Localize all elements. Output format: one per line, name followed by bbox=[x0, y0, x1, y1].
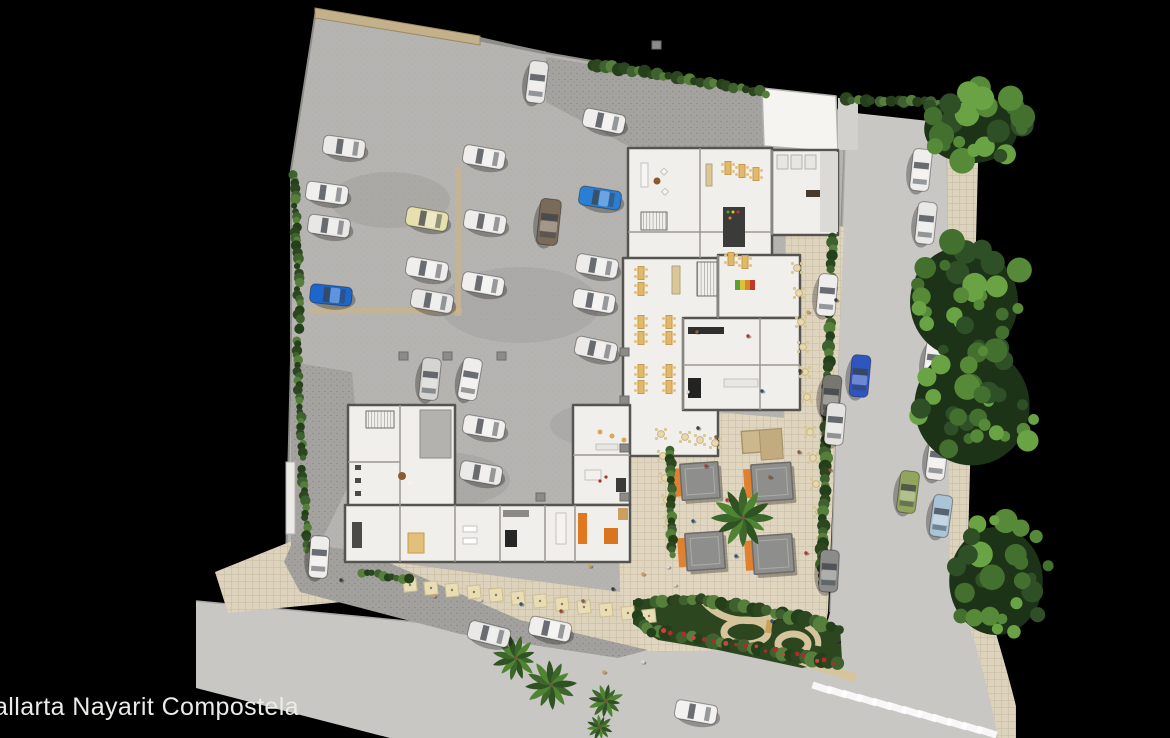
flowers bbox=[795, 652, 800, 657]
flowers bbox=[773, 647, 778, 652]
umbrella-table bbox=[511, 591, 525, 605]
umbrella-table bbox=[489, 588, 503, 602]
column-base bbox=[652, 41, 661, 49]
site-plan-render: allarta Nayarit Compostela bbox=[0, 0, 1170, 738]
umbrella-table bbox=[424, 581, 438, 595]
column-base bbox=[443, 352, 452, 360]
column-base bbox=[620, 396, 629, 404]
flowers bbox=[734, 643, 737, 646]
flowers bbox=[702, 637, 706, 641]
side-wall bbox=[286, 462, 295, 534]
flowers bbox=[755, 645, 759, 649]
flowers bbox=[668, 631, 673, 636]
flowers bbox=[712, 639, 716, 643]
column-base bbox=[497, 352, 506, 360]
watermark-caption: allarta Nayarit Compostela bbox=[0, 693, 299, 722]
flowers bbox=[661, 628, 666, 633]
flowers bbox=[815, 659, 819, 663]
column-base bbox=[620, 444, 629, 452]
umbrella-table bbox=[599, 603, 613, 617]
column-base bbox=[620, 348, 629, 356]
flowers bbox=[681, 632, 686, 637]
umbrella-table bbox=[533, 594, 547, 608]
flowers bbox=[723, 641, 728, 646]
parking-line bbox=[455, 168, 461, 316]
column-base bbox=[536, 493, 545, 501]
flowers bbox=[832, 662, 836, 666]
column-base bbox=[399, 352, 408, 360]
flowers bbox=[822, 657, 827, 662]
column-base bbox=[620, 493, 629, 501]
umbrella-table bbox=[445, 583, 459, 597]
umbrella-table bbox=[467, 585, 481, 599]
flowers bbox=[764, 649, 767, 652]
flowers bbox=[691, 635, 696, 640]
umbrella-table bbox=[555, 597, 569, 611]
site-plan-canvas bbox=[0, 0, 1170, 738]
flowers bbox=[802, 654, 805, 657]
flowers bbox=[782, 653, 786, 657]
flowers bbox=[743, 644, 748, 649]
